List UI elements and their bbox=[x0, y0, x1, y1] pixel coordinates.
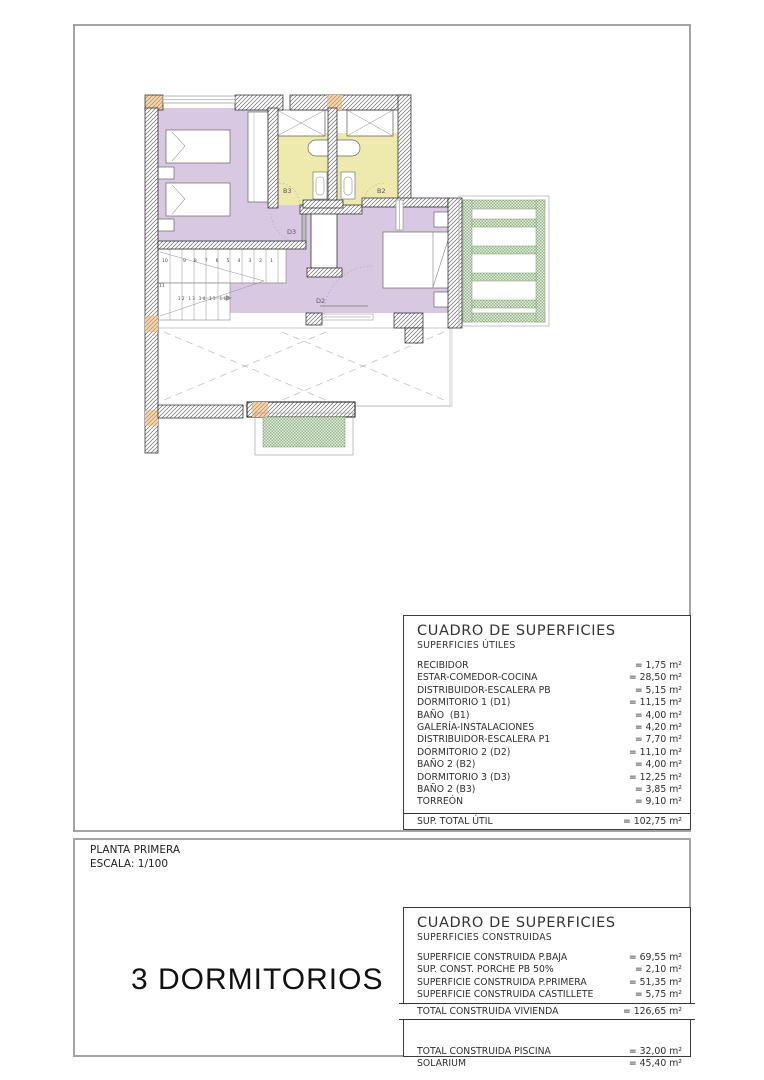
row-value: = 4,20 m² bbox=[635, 722, 682, 734]
table-row: DISTRIBUIDOR-ESCALERA P1 = 7,70 m² bbox=[417, 734, 682, 746]
surfaces-table-construidas: CUADRO DE SUPERFICIES SUPERFICIES CONSTR… bbox=[403, 907, 691, 1057]
row-label: BAÑO 2 (B2) bbox=[417, 759, 475, 771]
label-bath-b2: B2 bbox=[377, 187, 386, 195]
table-rows: SUPERFICIE CONSTRUIDA P.BAJA = 69,55 m² … bbox=[417, 952, 682, 1002]
nightstand bbox=[158, 167, 174, 179]
table-row: ESTAR-COMEDOR-COCINA = 28,50 m² bbox=[417, 672, 682, 684]
table-total-row: TOTAL CONSTRUIDA VIVIENDA = 126,65 m² bbox=[399, 1003, 695, 1020]
total-label: SUP. TOTAL ÚTIL bbox=[417, 815, 493, 829]
stair-number-turn: 10 bbox=[162, 258, 168, 264]
row-label: DORMITORIO 2 (D2) bbox=[417, 747, 510, 759]
table-row: BAÑO 2 (B2) = 4,00 m² bbox=[417, 759, 682, 771]
floor-label: PLANTA PRIMERA bbox=[90, 843, 180, 857]
table-row: TORREÓN = 9,10 m² bbox=[417, 796, 682, 808]
row-value: = 7,70 m² bbox=[635, 734, 682, 746]
row-value: = 11,10 m² bbox=[629, 747, 682, 759]
table-row: DORMITORIO 2 (D2) = 11,10 m² bbox=[417, 747, 682, 759]
table-row: TOTAL CONSTRUIDA PISCINA = 32,00 m² bbox=[417, 1046, 682, 1058]
table-title: CUADRO DE SUPERFICIES bbox=[417, 915, 690, 932]
row-label: SOLARIUM bbox=[417, 1058, 466, 1070]
table-row: BAÑO (B1) = 4,00 m² bbox=[417, 710, 682, 722]
wardrobe bbox=[248, 112, 268, 202]
label-door-d2: D2 bbox=[316, 297, 325, 305]
row-value: = 12,25 m² bbox=[629, 772, 682, 784]
row-value: = 4,00 m² bbox=[635, 759, 682, 771]
row-label: TORREÓN bbox=[417, 796, 463, 808]
bedrooms-title: 3 DORMITORIOS bbox=[131, 963, 383, 997]
row-value: = 3,85 m² bbox=[635, 784, 682, 796]
table-row: DISTRIBUIDOR-ESCALERA PB = 5,15 m² bbox=[417, 685, 682, 697]
row-value: = 69,55 m² bbox=[629, 952, 682, 964]
label-bath-b3: B3 bbox=[283, 187, 292, 195]
row-value: = 1,75 m² bbox=[635, 660, 682, 672]
stair-numbers-top: 9 8 7 6 5 4 3 2 1 bbox=[183, 258, 273, 264]
total-value: = 102,75 m² bbox=[623, 815, 682, 829]
table-row: SOLARIUM = 45,40 m² bbox=[417, 1058, 682, 1070]
nightstand bbox=[158, 219, 174, 231]
row-label: DORMITORIO 1 (D1) bbox=[417, 697, 510, 709]
row-value: = 9,10 m² bbox=[635, 796, 682, 808]
page: { "plan": { "labels": { "b3": "B3", "b2"… bbox=[0, 0, 764, 1080]
plan-caption: PLANTA PRIMERA ESCALA: 1/100 bbox=[90, 843, 180, 871]
bed-single-2 bbox=[166, 183, 230, 216]
row-label: RECIBIDOR bbox=[417, 660, 469, 672]
table-row: SUPERFICIE CONSTRUIDA CASTILLETE = 5,75 … bbox=[417, 989, 682, 1001]
stair-numbers-bottom: 12 13 14 15 16 bbox=[178, 296, 226, 301]
row-value: = 2,10 m² bbox=[635, 964, 682, 976]
total-label: TOTAL CONSTRUIDA VIVIENDA bbox=[417, 1004, 559, 1019]
table-row: BAÑO 2 (B3) = 3,85 m² bbox=[417, 784, 682, 796]
row-label: SUP. CONST. PORCHE PB 50% bbox=[417, 964, 554, 976]
table-row: RECIBIDOR = 1,75 m² bbox=[417, 660, 682, 672]
table-subtitle: SUPERFICIES CONSTRUIDAS bbox=[417, 932, 690, 943]
row-label: DORMITORIO 3 (D3) bbox=[417, 772, 510, 784]
row-label: DISTRIBUIDOR-ESCALERA PB bbox=[417, 685, 551, 697]
row-label: SUPERFICIE CONSTRUIDA P.PRIMERA bbox=[417, 977, 587, 989]
row-value: = 11,15 m² bbox=[629, 697, 682, 709]
row-label: BAÑO 2 (B3) bbox=[417, 784, 475, 796]
table-total-row: SUP. TOTAL ÚTIL = 102,75 m² bbox=[404, 813, 690, 829]
label-door-d3: D3 bbox=[287, 228, 296, 236]
row-label: ESTAR-COMEDOR-COCINA bbox=[417, 672, 538, 684]
row-label: SUPERFICIE CONSTRUIDA P.BAJA bbox=[417, 952, 567, 964]
table-row: SUP. CONST. PORCHE PB 50% = 2,10 m² bbox=[417, 964, 682, 976]
row-value: = 51,35 m² bbox=[629, 977, 682, 989]
row-value: = 28,50 m² bbox=[629, 672, 682, 684]
row-label: GALERÍA-INSTALACIONES bbox=[417, 722, 534, 734]
scale-label: ESCALA: 1/100 bbox=[90, 857, 180, 871]
pergola bbox=[459, 196, 549, 326]
table-row: DORMITORIO 1 (D1) = 11,15 m² bbox=[417, 697, 682, 709]
table-row: SUPERFICIE CONSTRUIDA P.PRIMERA = 51,35 … bbox=[417, 977, 682, 989]
row-label: DISTRIBUIDOR-ESCALERA P1 bbox=[417, 734, 550, 746]
row-label: TOTAL CONSTRUIDA PISCINA bbox=[417, 1046, 551, 1058]
row-value: = 4,00 m² bbox=[635, 710, 682, 722]
bed-single-1 bbox=[166, 130, 230, 163]
table-rows: RECIBIDOR = 1,75 m² ESTAR-COMEDOR-COCINA… bbox=[417, 660, 682, 809]
table-subtitle: SUPERFICIES ÚTILES bbox=[417, 640, 690, 651]
row-value: = 5,75 m² bbox=[635, 989, 682, 1001]
bed-double bbox=[383, 232, 450, 288]
table-row: GALERÍA-INSTALACIONES = 4,20 m² bbox=[417, 722, 682, 734]
table-extra-rows: TOTAL CONSTRUIDA PISCINA = 32,00 m² SOLA… bbox=[417, 1046, 682, 1071]
total-value: = 126,65 m² bbox=[623, 1004, 682, 1019]
row-value: = 45,40 m² bbox=[629, 1058, 682, 1070]
table-title: CUADRO DE SUPERFICIES bbox=[417, 623, 690, 640]
row-label: BAÑO (B1) bbox=[417, 710, 469, 722]
stair-number-landing: 11 bbox=[159, 283, 165, 289]
row-value: = 32,00 m² bbox=[629, 1046, 682, 1058]
door-leaf-d3 bbox=[302, 212, 306, 243]
row-value: = 5,15 m² bbox=[635, 685, 682, 697]
porch-below bbox=[255, 413, 353, 455]
surfaces-table-utiles: CUADRO DE SUPERFICIES SUPERFICIES ÚTILES… bbox=[403, 615, 691, 830]
table-row: DORMITORIO 3 (D3) = 12,25 m² bbox=[417, 772, 682, 784]
floor-plan: 10 9 8 7 6 5 4 3 2 1 11 12 13 14 15 16 bbox=[0, 0, 764, 500]
table-row: SUPERFICIE CONSTRUIDA P.BAJA = 69,55 m² bbox=[417, 952, 682, 964]
row-label: SUPERFICIE CONSTRUIDA CASTILLETE bbox=[417, 989, 593, 1001]
